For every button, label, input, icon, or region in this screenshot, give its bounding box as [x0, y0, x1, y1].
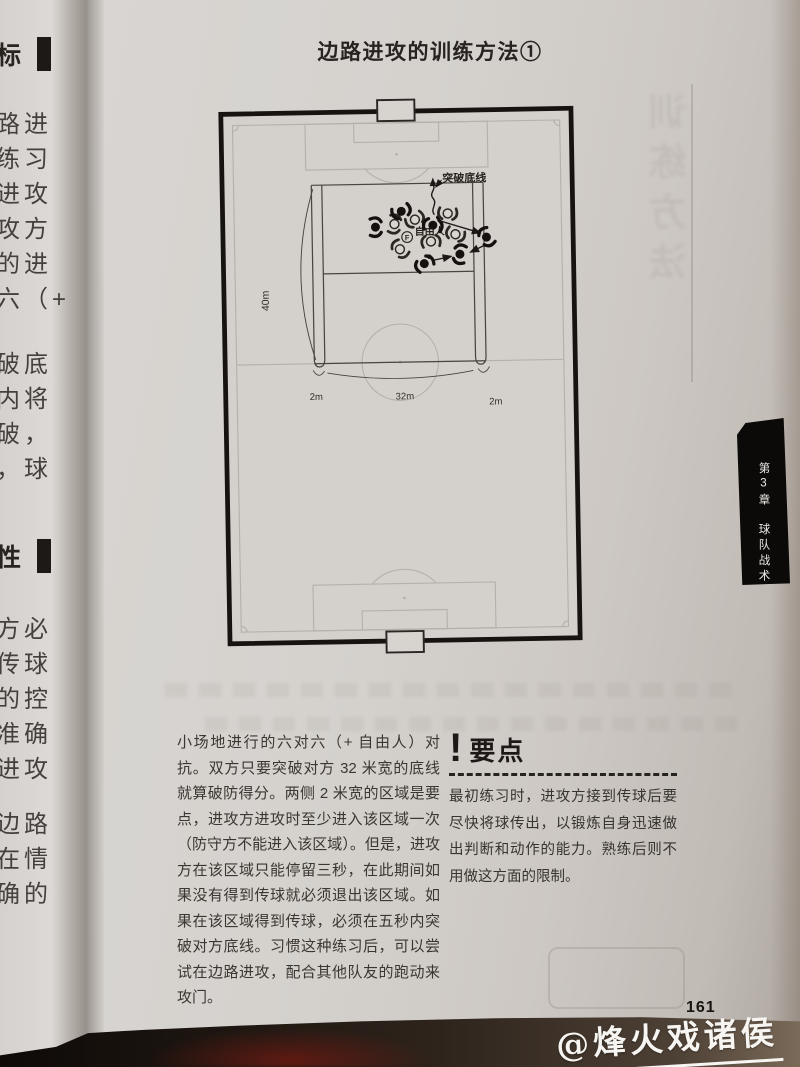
ghost-showthrough-box — [548, 947, 685, 1009]
left-page-fragment: 攻方 — [0, 209, 52, 244]
page-title: 边路进攻的训练方法① — [295, 36, 565, 66]
left-page-fragment: 在情 — [0, 839, 52, 874]
ghost-showthrough-row — [165, 683, 740, 697]
left-page-fragment: 的控 — [0, 679, 52, 714]
diagram-frame — [221, 108, 580, 644]
left-page-fragment: 内将 — [0, 379, 52, 414]
depth-label: 40m — [261, 290, 272, 311]
left-page-fragments: 标路进练习进攻攻方的进六（+破底内将破，，球性方必传球的控准确进攻边路在情确的 — [0, 0, 60, 1067]
tab-section-label: 球队战术 — [756, 523, 772, 585]
chapter-tab: 第3章 球队战术 — [737, 418, 790, 585]
left-page-fragment: 练习 — [0, 139, 52, 174]
exclamation-icon: ! — [449, 728, 462, 768]
section-marker-bar — [37, 539, 51, 573]
keypoints-header: ! 要点 — [449, 722, 677, 768]
training-diagram: F 突破底线 自由人 40m 2m 32m 2m — [211, 93, 590, 661]
left-page-fragment: 路进 — [0, 104, 52, 139]
left-page-fragment: 的进 — [0, 244, 52, 279]
keypoints-body: 最初练习时，进攻方接到传球后要尽快将球传出，以锻炼自身迅速做出判断和动作的能力。… — [449, 784, 677, 890]
keypoints-section: ! 要点 最初练习时，进攻方接到传球后要尽快将球传出，以锻炼自身迅速做出判断和动… — [449, 722, 677, 890]
tab-chapter-label: 第3章 — [756, 462, 772, 509]
right-width-label: 2m — [489, 396, 502, 407]
left-page-fragment: 方必 — [0, 609, 52, 644]
left-page-fragment: 破， — [0, 414, 52, 449]
breakthrough-label: 突破底线 — [442, 170, 486, 185]
left-page-fragment: 准确 — [0, 714, 52, 749]
keypoints-heading: 要点 — [469, 734, 525, 768]
left-page-fragment: 标 — [0, 36, 51, 72]
description-paragraph: 小场地进行的六对六（+ 自由人）对抗。双方只要突破对方 32 米宽的底线就算破防… — [177, 730, 440, 1011]
ghost-showthrough-line — [691, 84, 693, 382]
center-width-label: 32m — [396, 391, 415, 402]
left-page-fragment: 性 — [0, 538, 51, 574]
goal-bottom — [386, 631, 424, 653]
soccer-field-svg: F 突破底线 自由人 40m 2m 32m 2m — [211, 93, 590, 661]
goal-top — [377, 100, 415, 122]
table-surface — [150, 1028, 430, 1067]
svg-text:F: F — [405, 233, 410, 242]
left-page-fragment: 进攻 — [0, 174, 52, 209]
left-page-fragment: 传球 — [0, 644, 52, 679]
left-page-fragment: ，球 — [0, 449, 52, 484]
section-marker-bar — [37, 37, 51, 71]
left-page-fragment: 六（+ — [0, 279, 70, 314]
left-page-fragment: 进攻 — [0, 749, 52, 784]
left-width-label: 2m — [310, 392, 323, 403]
left-page-fragment: 确的 — [0, 874, 52, 909]
keypoints-divider — [449, 773, 677, 776]
left-page-fragment: 破底 — [0, 344, 52, 379]
left-page-fragment: 边路 — [0, 804, 52, 839]
book-page-photo: 训练方法 标路进练习进攻攻方的进六（+破底内将破，，球性方必传球的控准确进攻边路… — [0, 0, 800, 1067]
